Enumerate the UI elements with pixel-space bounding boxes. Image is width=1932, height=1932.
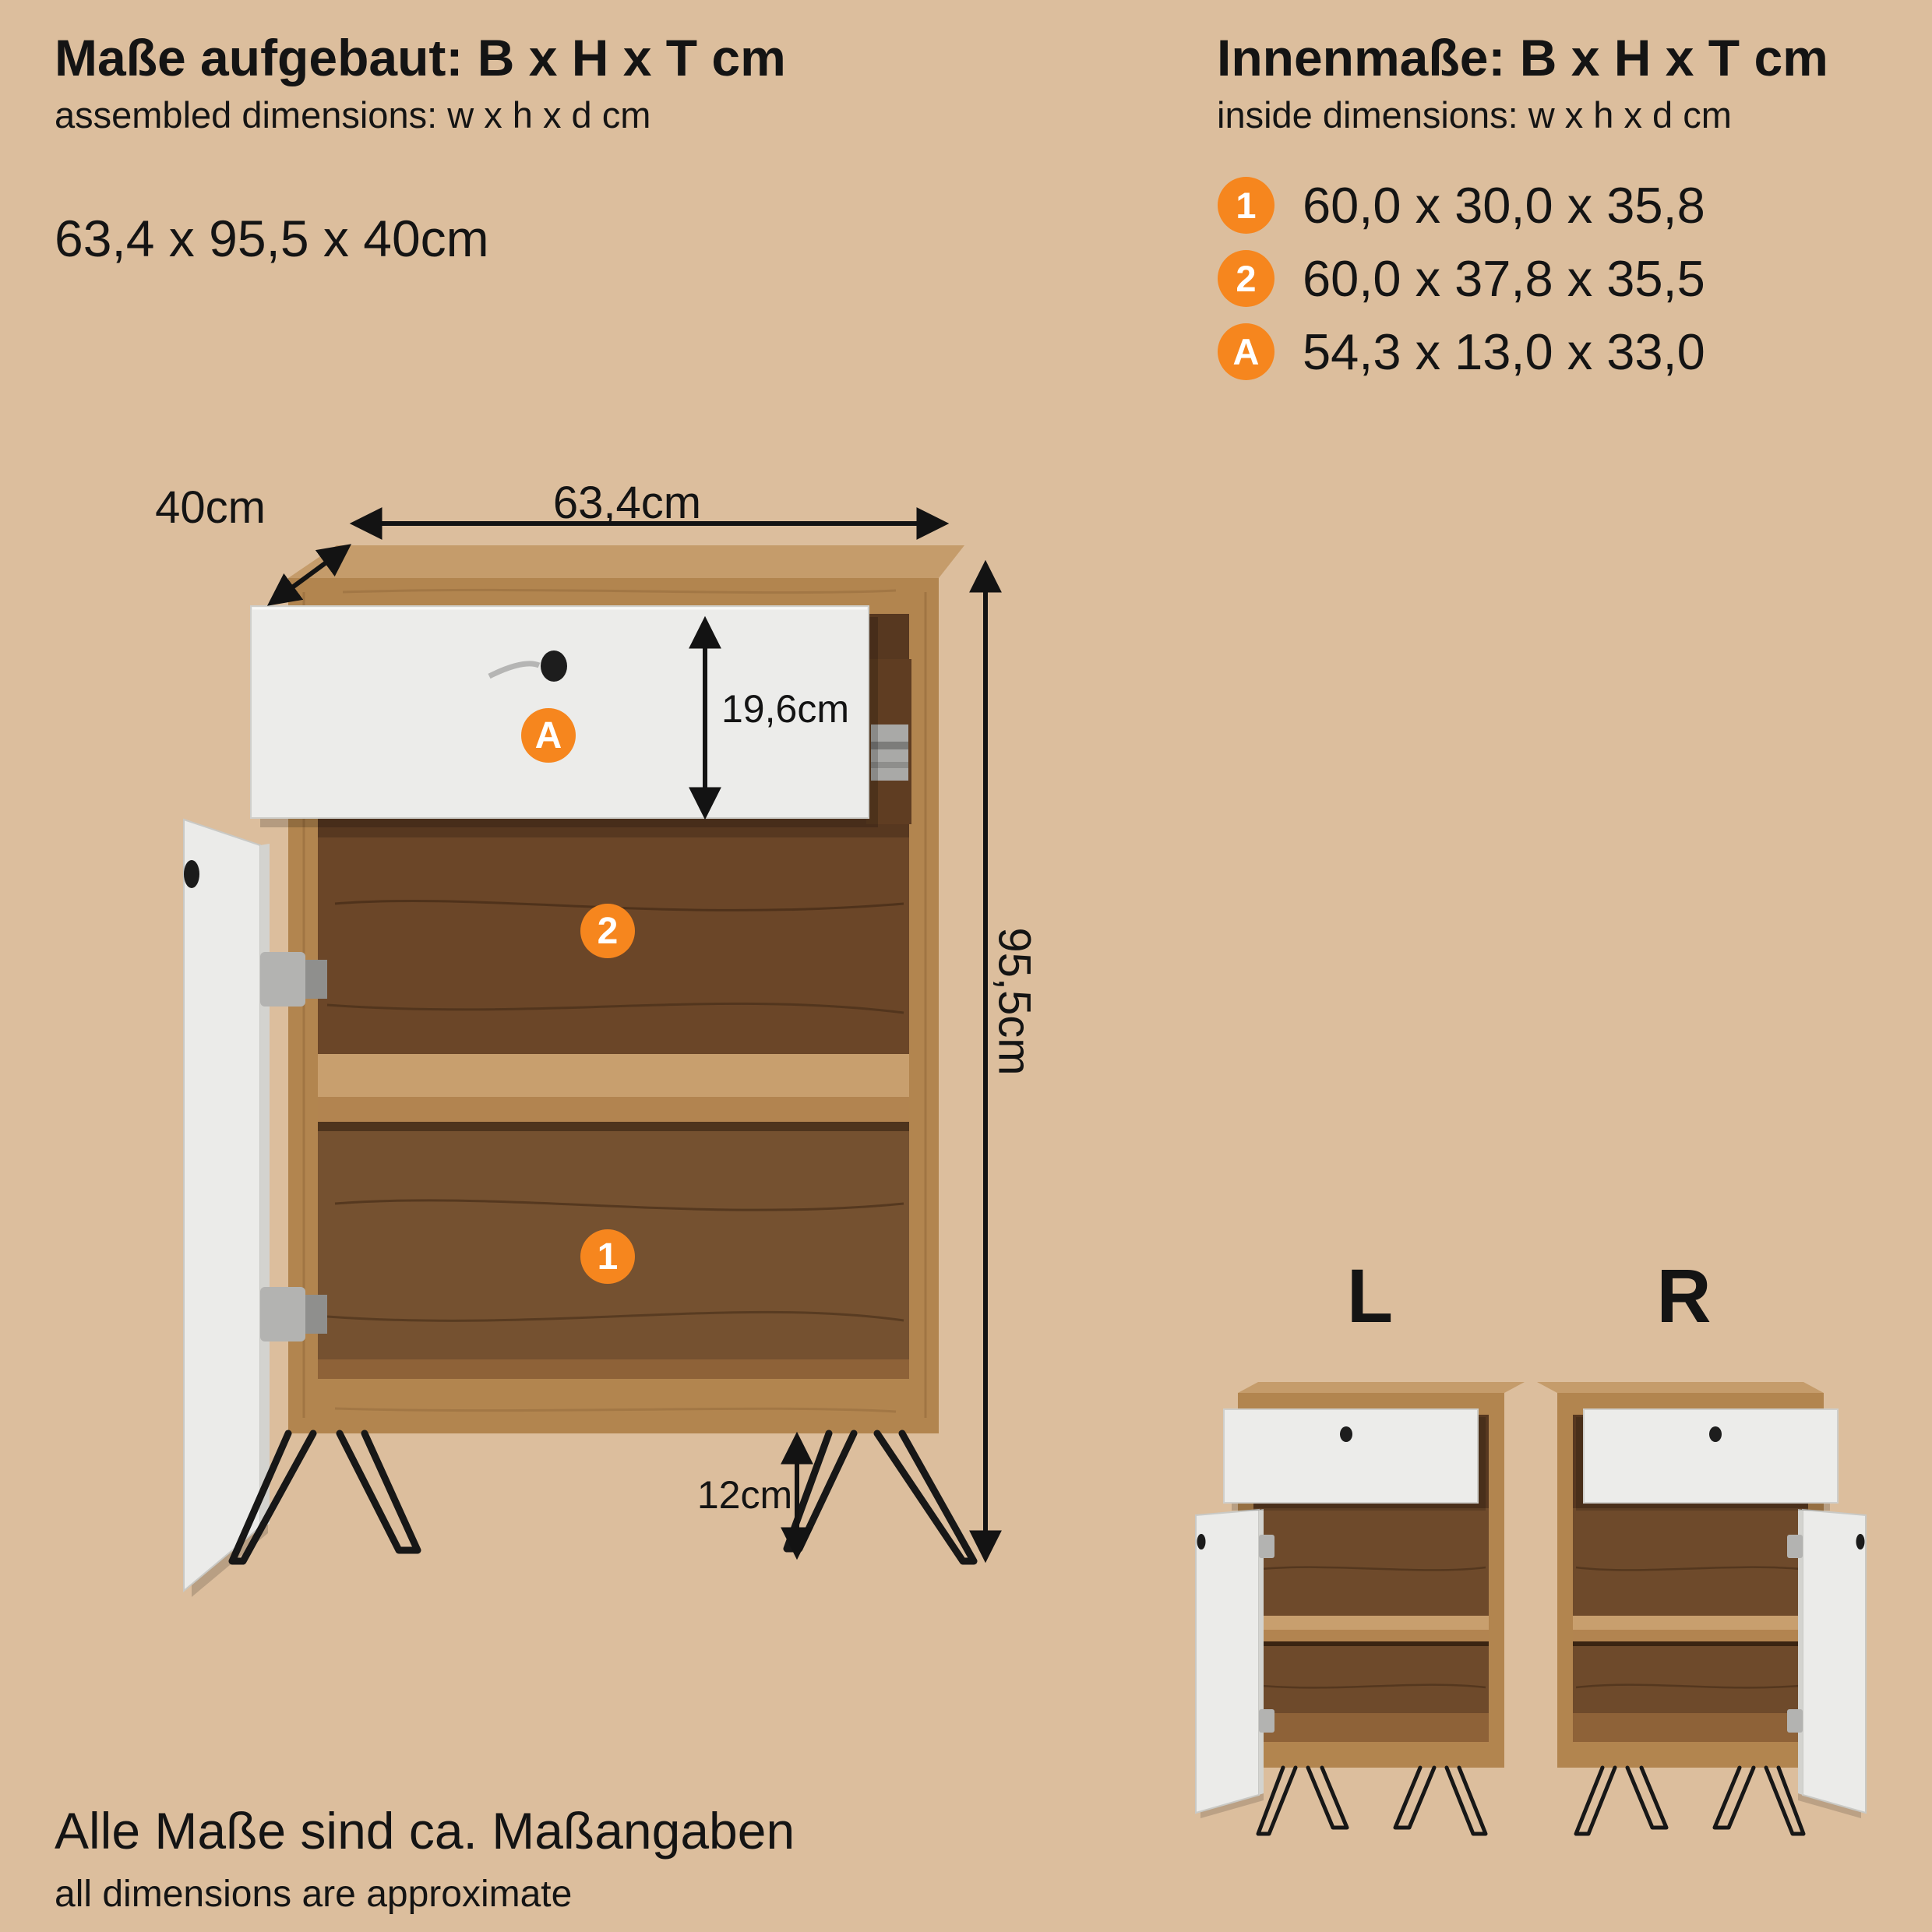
inside-dimension-row-1: 1 60,0 x 30,0 x 35,8 bbox=[1218, 176, 1705, 234]
variant-left-label: L bbox=[1313, 1253, 1426, 1340]
assembled-values: 63,4 x 95,5 x 40cm bbox=[55, 209, 786, 268]
drawer-height-dimension-label: 19,6cm bbox=[721, 686, 849, 732]
inside-title: Innenmaße: B x H x T cm bbox=[1217, 31, 1828, 85]
assembled-dimensions-header: Maße aufgebaut: B x H x T cm assembled d… bbox=[55, 31, 786, 268]
row-a-badge: A bbox=[1218, 323, 1274, 380]
row-1-badge: 1 bbox=[1218, 177, 1274, 234]
drawer-compartment-badge: A bbox=[521, 708, 576, 763]
drawer-knob bbox=[541, 650, 567, 682]
note-en: all dimensions are approximate bbox=[55, 1873, 795, 1916]
variant-right-label: R bbox=[1627, 1253, 1740, 1340]
assembled-subtitle: assembled dimensions: w x h x d cm bbox=[55, 96, 786, 134]
cabinet-shelf bbox=[318, 1054, 909, 1131]
row-a-value: 54,3 x 13,0 x 33,0 bbox=[1303, 323, 1705, 381]
width-dimension-label: 63,4cm bbox=[502, 477, 752, 529]
leg-height-dimension-label: 12cm bbox=[667, 1472, 823, 1518]
variant-cabinet-left bbox=[1196, 1382, 1525, 1834]
inside-dimension-row-a: A 54,3 x 13,0 x 33,0 bbox=[1218, 323, 1705, 380]
approximate-dimensions-note: Alle Maße sind ca. Maßangaben all dimens… bbox=[55, 1801, 795, 1916]
main-cabinet bbox=[184, 545, 974, 1597]
middle-compartment-badge: 2 bbox=[580, 904, 635, 958]
cabinet-legs bbox=[232, 1433, 974, 1561]
variant-cabinet-right bbox=[1537, 1382, 1866, 1834]
product-dimensions-infographic: Maße aufgebaut: B x H x T cm assembled d… bbox=[0, 0, 1932, 1932]
door-hinge-bottom bbox=[260, 1287, 327, 1341]
note-de: Alle Maße sind ca. Maßangaben bbox=[55, 1801, 795, 1860]
door-knob bbox=[184, 860, 199, 888]
assembled-title: Maße aufgebaut: B x H x T cm bbox=[55, 31, 786, 85]
row-2-value: 60,0 x 37,8 x 35,5 bbox=[1303, 249, 1705, 308]
door-hinge-top bbox=[260, 952, 327, 1007]
inside-dimension-row-2: 2 60,0 x 37,8 x 35,5 bbox=[1218, 249, 1705, 307]
row-1-value: 60,0 x 30,0 x 35,8 bbox=[1303, 176, 1705, 234]
height-dimension-label: 95,5cm bbox=[989, 885, 1041, 1119]
row-2-badge: 2 bbox=[1218, 250, 1274, 307]
cabinet-top-face bbox=[288, 545, 964, 578]
inside-dimensions-header: Innenmaße: B x H x T cm inside dimension… bbox=[1217, 31, 1828, 134]
bottom-compartment-badge: 1 bbox=[580, 1229, 635, 1284]
depth-dimension-label: 40cm bbox=[117, 481, 304, 534]
inside-subtitle: inside dimensions: w x h x d cm bbox=[1217, 96, 1828, 134]
